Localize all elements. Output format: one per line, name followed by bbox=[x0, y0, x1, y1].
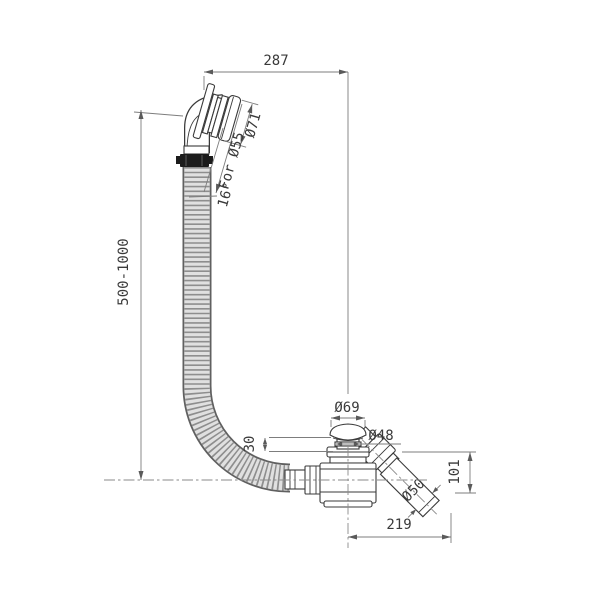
corrugated-hose bbox=[197, 167, 290, 478]
hose-clamp bbox=[176, 154, 213, 167]
overflow-hose-cuff bbox=[184, 146, 209, 154]
technical-drawing-page: Ø50 Ø71 bbox=[0, 0, 600, 600]
label-outlet-length: 219 bbox=[386, 517, 411, 533]
hose-end-pipe bbox=[285, 470, 307, 489]
label-outlet-height: 101 bbox=[447, 459, 463, 484]
dim-hose-length: 500-1000 bbox=[116, 110, 183, 480]
label-plug-height: 30 bbox=[242, 436, 258, 453]
bath-waste-overflow-drawing: Ø50 Ø71 bbox=[0, 0, 600, 600]
label-overall-width: 287 bbox=[263, 53, 288, 69]
dim-waste-cap-diameter: Ø69 bbox=[331, 400, 365, 427]
label-hose-length: 500-1000 bbox=[116, 238, 132, 305]
dim-plug-height: 30 bbox=[242, 436, 333, 453]
label-waste-cap-diameter: Ø69 bbox=[334, 400, 359, 416]
label-plug-diameter: Ø48 bbox=[368, 428, 393, 444]
dim-outlet-length: 219 bbox=[348, 513, 451, 543]
